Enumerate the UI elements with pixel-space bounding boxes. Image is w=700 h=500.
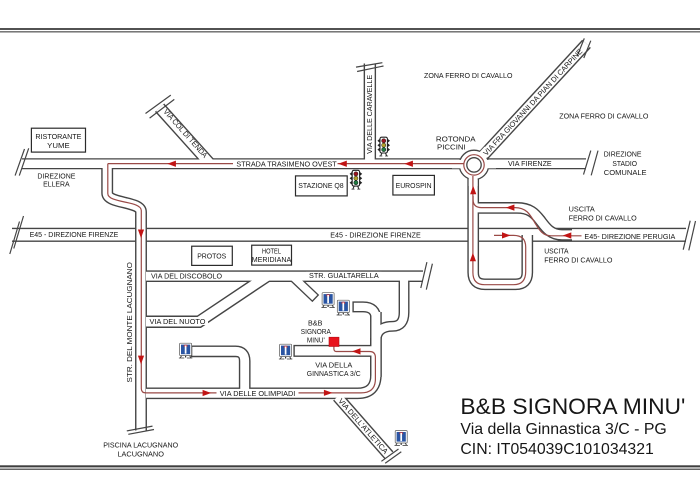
svg-text:EUROSPIN: EUROSPIN — [396, 181, 432, 190]
svg-text:VIA DELLE CARAVELLE: VIA DELLE CARAVELLE — [365, 75, 374, 154]
svg-text:GINNASTICA 3/C: GINNASTICA 3/C — [307, 369, 361, 378]
svg-text:MINU': MINU' — [307, 335, 325, 344]
svg-text:VIA DEL DISCOBOLO: VIA DEL DISCOBOLO — [151, 272, 222, 281]
svg-text:E45 - DIREZIONE FIRENZE: E45 - DIREZIONE FIRENZE — [330, 231, 421, 240]
svg-text:STADIO: STADIO — [612, 159, 637, 168]
svg-text:VIA DELLE OLIMPIADI: VIA DELLE OLIMPIADI — [220, 389, 295, 398]
svg-text:USCITA: USCITA — [544, 246, 568, 255]
svg-text:CIN: IT054039C101034321: CIN: IT054039C101034321 — [460, 441, 653, 458]
svg-text:STR. DEL MONTE LACUGNANO: STR. DEL MONTE LACUGNANO — [125, 262, 134, 382]
svg-text:B&B SIGNORA MINU': B&B SIGNORA MINU' — [460, 394, 685, 419]
svg-text:STRADA TRASIMENO OVEST: STRADA TRASIMENO OVEST — [236, 159, 337, 168]
svg-text:DIREZIONE: DIREZIONE — [604, 150, 642, 159]
svg-text:E45- DIREZIONE PERUGIA: E45- DIREZIONE PERUGIA — [584, 232, 675, 241]
svg-text:COMUNALE: COMUNALE — [604, 168, 647, 177]
svg-text:FERRO DI CAVALLO: FERRO DI CAVALLO — [569, 213, 637, 222]
svg-text:VIA DEL NUOTO: VIA DEL NUOTO — [150, 317, 206, 326]
svg-text:USCITA: USCITA — [569, 204, 595, 213]
svg-text:MERIDIANA: MERIDIANA — [252, 255, 292, 264]
svg-text:STR. GUALTARELLA: STR. GUALTARELLA — [309, 271, 379, 280]
svg-text:YUME: YUME — [47, 141, 70, 150]
svg-text:LACUGNANO: LACUGNANO — [117, 449, 164, 458]
svg-text:FERRO DI CAVALLO: FERRO DI CAVALLO — [544, 256, 612, 265]
svg-text:STAZIONE Q8: STAZIONE Q8 — [298, 181, 344, 190]
svg-text:ELLERA: ELLERA — [43, 179, 70, 188]
svg-text:ZONA FERRO DI CAVALLO: ZONA FERRO DI CAVALLO — [559, 111, 648, 120]
svg-text:E45 - DIREZIONE FIRENZE: E45 - DIREZIONE FIRENZE — [30, 230, 119, 239]
svg-text:VIA FIRENZE: VIA FIRENZE — [508, 159, 552, 168]
svg-text:PICCINI: PICCINI — [437, 142, 466, 151]
svg-text:ZONA FERRO DI CAVALLO: ZONA FERRO DI CAVALLO — [424, 71, 513, 80]
svg-text:PROTOS: PROTOS — [197, 252, 226, 261]
svg-text:RISTORANTE: RISTORANTE — [35, 132, 81, 141]
svg-text:Via della Ginnastica 3/C - PG: Via della Ginnastica 3/C - PG — [460, 421, 666, 438]
